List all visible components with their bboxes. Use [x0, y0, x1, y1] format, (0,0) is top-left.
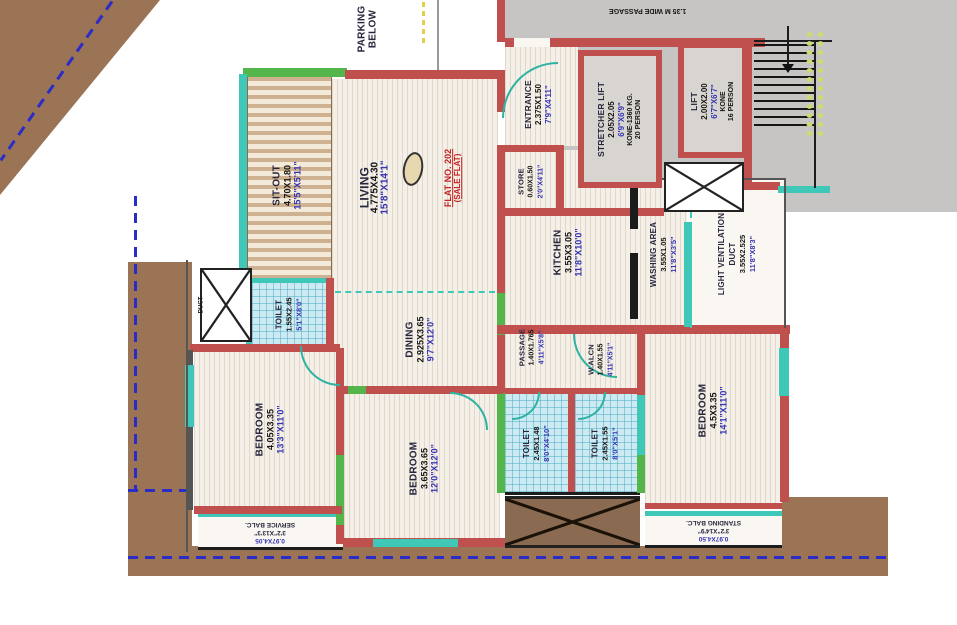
room-dim-ft: 4'11"X5'1" — [607, 342, 617, 376]
room-name: TOILET — [589, 426, 600, 460]
room-dim-m: 2.45X1.55 — [600, 426, 610, 460]
room-name: TOILET — [521, 425, 532, 462]
service-balcony-line — [198, 547, 343, 550]
room-name: BEDROOM — [409, 441, 420, 495]
parking-label: PARKING BELOW — [340, 0, 395, 58]
room-dim-m: 1.40X1.765 — [528, 328, 538, 366]
parking-text2: BELOW — [368, 6, 379, 53]
outline — [186, 260, 188, 552]
room-dim-ft: 4'11"X5'8" — [538, 328, 548, 366]
toilet-top-label: TOILET 1.55X2.45 5'1"X8'0" — [252, 282, 326, 346]
room-dim-ft: 6'7"X6'7" — [710, 81, 720, 120]
staircase-step-dots — [804, 30, 828, 138]
wall — [497, 0, 505, 42]
wall — [348, 386, 366, 394]
bedroom-right-left-window — [637, 395, 645, 455]
wall — [497, 216, 505, 293]
room-dim-ft: 8'0"X5'1" — [610, 426, 620, 460]
room-dim-m: 2.925X3.65 — [415, 316, 425, 362]
parking-text: PARKING — [357, 6, 368, 53]
room-dim-m: 2.00X2.00 — [700, 81, 710, 120]
outline — [784, 178, 786, 328]
room-name: PASSAGE — [517, 328, 528, 366]
balcony-dim2: 3'2"X14'9" — [686, 526, 741, 534]
duct-x-icon — [505, 496, 640, 548]
room-dim-ft: 5'1"X8'0" — [294, 297, 304, 331]
corridor-label: 1.35 M WIDE PASSAGE — [545, 2, 750, 18]
bedroom-right-window — [779, 348, 789, 396]
room-dim-ft: 15'5"X5'11" — [293, 161, 303, 209]
balcony-name: SERVICE BALC. — [245, 520, 295, 528]
room-dim-m: 4.05X3.35 — [266, 402, 276, 456]
room-dim-m: 2.375X1.50 — [533, 80, 543, 129]
room-name: STRETCHER LIFT — [596, 81, 607, 156]
land-bottom-right — [782, 497, 888, 557]
room-dim-ft: 11'8"X10'0" — [573, 228, 583, 276]
wall — [243, 68, 347, 77]
room-dim-ft: 11'8"X3'5" — [670, 221, 680, 286]
wall — [645, 503, 782, 509]
room-name: ENTRANCE — [522, 80, 533, 129]
standing-balcony-label: 0.97X4.50 3'2"X14'9" STANDING BALC. — [645, 515, 782, 545]
sitout-label: SIT-OUT 4.70X1.80 15'5"X5'11" — [245, 80, 330, 290]
room-dim-m: 2.45X1.48 — [532, 425, 542, 462]
lift-capacity: 20 PERSON — [635, 81, 643, 156]
land-top-left — [0, 0, 160, 195]
room-dim-m: 1.55X2.45 — [284, 297, 294, 331]
washing-area-label: WASHING AREA 3.55X1.05 11'8"X3'5" — [640, 185, 688, 323]
room-name: TOILET — [273, 297, 284, 331]
balcony-dim: 0.97X4.50 — [686, 534, 741, 542]
room-dim-ft: 14'1"X11'0" — [719, 383, 729, 437]
duct-text: DUCT — [197, 297, 205, 314]
room-name: BEDROOM — [698, 383, 709, 437]
stairs-arrow-stem — [787, 26, 789, 66]
room-dim-m: 2.05X2.05 — [607, 81, 617, 156]
room-dim-ft: 13'3"X11'0" — [276, 402, 286, 456]
balcony-name: STANDING BALC. — [686, 518, 741, 526]
room-name: LIGHT VENTILATION — [716, 213, 727, 295]
land-bottom-band — [128, 546, 888, 576]
parking-yellow-dash-line — [422, 2, 425, 44]
floor-plan: PARKING BELOW 1.35 M WIDE PASSAGE — [0, 0, 957, 625]
room-dim-ft: 11'8"X8'3" — [748, 213, 758, 295]
room-name: WASHING AREA — [649, 221, 660, 286]
room-name: BEDROOM — [255, 402, 266, 456]
room-dim-m: 4.5X3.35 — [709, 383, 719, 437]
wall — [194, 506, 342, 514]
room-dim-ft: 9'7"X12'0" — [425, 316, 435, 362]
wall — [637, 455, 645, 493]
bedroom-right-label: BEDROOM 4.5X3.35 14'1"X11'0" — [648, 335, 778, 485]
boundary-line-left-jog — [128, 489, 192, 492]
wall — [345, 70, 505, 79]
bedroom-mid-label: BEDROOM 3.65X3.65 12'0"X12'0" — [350, 400, 498, 536]
flat-type-text: (SALE FLAT) — [453, 149, 463, 207]
light-duct-label: LIGHT VENTILATION DUCT 3.55X2.525 11'8"X… — [692, 185, 782, 323]
kitchen-label: KITCHEN 3.55X3.05 11'8"X10'0" — [512, 180, 624, 325]
room-dim-m: 1.40X1.55 — [597, 342, 607, 376]
entrance-door-gap — [514, 38, 550, 47]
standing-balcony-line — [645, 545, 782, 548]
room-dim-ft: 6'9"X6'9" — [617, 81, 627, 156]
room-name: LIFT — [689, 81, 700, 120]
room-name: W.ALCN — [586, 342, 597, 376]
duct-small-label: DUCT — [194, 285, 208, 325]
wall — [497, 335, 505, 393]
entrance-label: ENTRANCE 2.375X1.50 7'9"X4'11" — [505, 52, 571, 157]
boundary-line-bottom — [128, 556, 888, 559]
land-left-band — [128, 262, 192, 565]
balcony-dim: 0.97X4.05 — [245, 536, 295, 544]
living-label: LIVING 4.775X4.30 15'8"X14'1" — [330, 85, 420, 290]
room-name: SIT-OUT — [272, 161, 283, 209]
toilet-bl-label: TOILET 2.45X1.48 8'0"X4'10" — [506, 396, 567, 490]
kitchen-platform — [630, 253, 638, 319]
room-dim-m: 3.55X1.05 — [660, 221, 670, 286]
room-dim-m: 4.70X1.80 — [283, 161, 293, 209]
passage-label: PASSAGE 1.40X1.765 4'11"X5'8" — [506, 305, 558, 389]
lift-capacity: 16 PERSON — [728, 81, 736, 120]
room-dim-ft: 7'9"X4'11" — [543, 80, 553, 129]
corridor-text: 1.35 M WIDE PASSAGE — [609, 6, 686, 14]
stairs-down-arrow-icon — [782, 64, 794, 73]
toilet-br-label: TOILET 2.45X1.55 8'0"X5'1" — [574, 396, 636, 490]
room-dim-m: 3.55X2.525 — [738, 213, 748, 295]
boundary-line-left — [134, 196, 137, 492]
room-dim-m: 3.65X3.65 — [420, 441, 430, 495]
lift-label: LIFT 2.00X2.00 6'7"X6'7" KONE 16 PERSON — [682, 52, 744, 150]
room-dim-ft: 12'0"X12'0" — [430, 441, 440, 495]
room-dim-ft: 15'8"X14'1" — [381, 160, 391, 214]
room-name2: DUCT — [727, 213, 738, 295]
balcony-dim2: 3'2"X13'3" — [245, 528, 295, 536]
service-balcony-label: 0.97X4.05 3'2"X13'3" SERVICE BALC. — [198, 517, 343, 547]
bedroom-mid-window — [373, 539, 458, 547]
flat-number-label: FLAT NO. 202 (SALE FLAT) — [425, 118, 481, 238]
w-alcn-label: W.ALCN 1.40X1.55 4'11"X5'1" — [562, 328, 640, 390]
room-dim-ft: 8'0"X4'10" — [542, 425, 552, 462]
wall — [497, 393, 505, 493]
room-name: KITCHEN — [552, 228, 563, 276]
room-name: DINING — [404, 316, 415, 362]
parking-bay-line — [437, 0, 439, 70]
outline — [505, 492, 640, 495]
room-dim-m: 3.55X3.05 — [563, 228, 573, 276]
dining-label: DINING 2.925X3.65 9'7"X12'0" — [345, 293, 495, 385]
flat-no-text: FLAT NO. 202 — [443, 149, 453, 207]
bedroom-left-label: BEDROOM 4.05X3.35 13'3"X11'0" — [200, 355, 340, 503]
stretcher-lift-label: STRETCHER LIFT 2.05X2.05 6'9"X6'9" KONE-… — [580, 58, 660, 180]
